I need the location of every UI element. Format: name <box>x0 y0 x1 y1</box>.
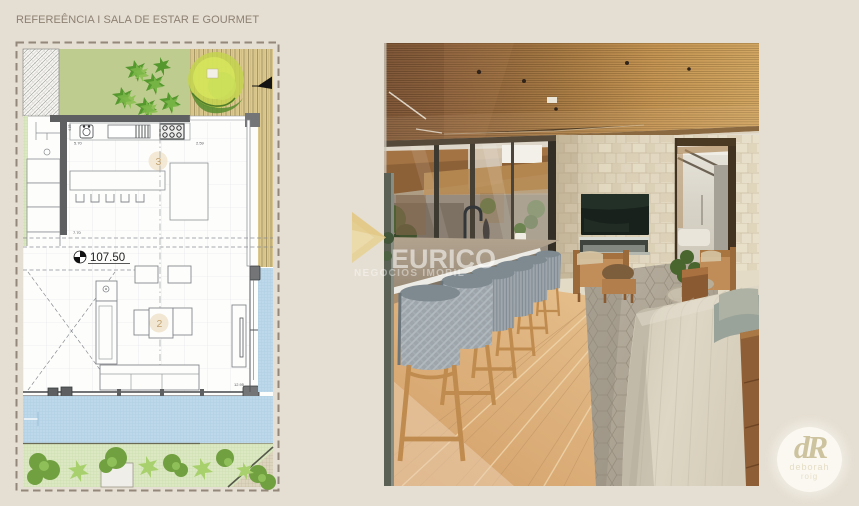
svg-text:2.59: 2.59 <box>196 141 205 146</box>
svg-text:5.70: 5.70 <box>74 141 83 146</box>
svg-text:107.50: 107.50 <box>90 252 125 264</box>
svg-text:3: 3 <box>156 156 162 168</box>
svg-text:7.70: 7.70 <box>73 230 82 235</box>
svg-text:4.85: 4.85 <box>68 124 72 131</box>
svg-text:2: 2 <box>157 318 163 330</box>
